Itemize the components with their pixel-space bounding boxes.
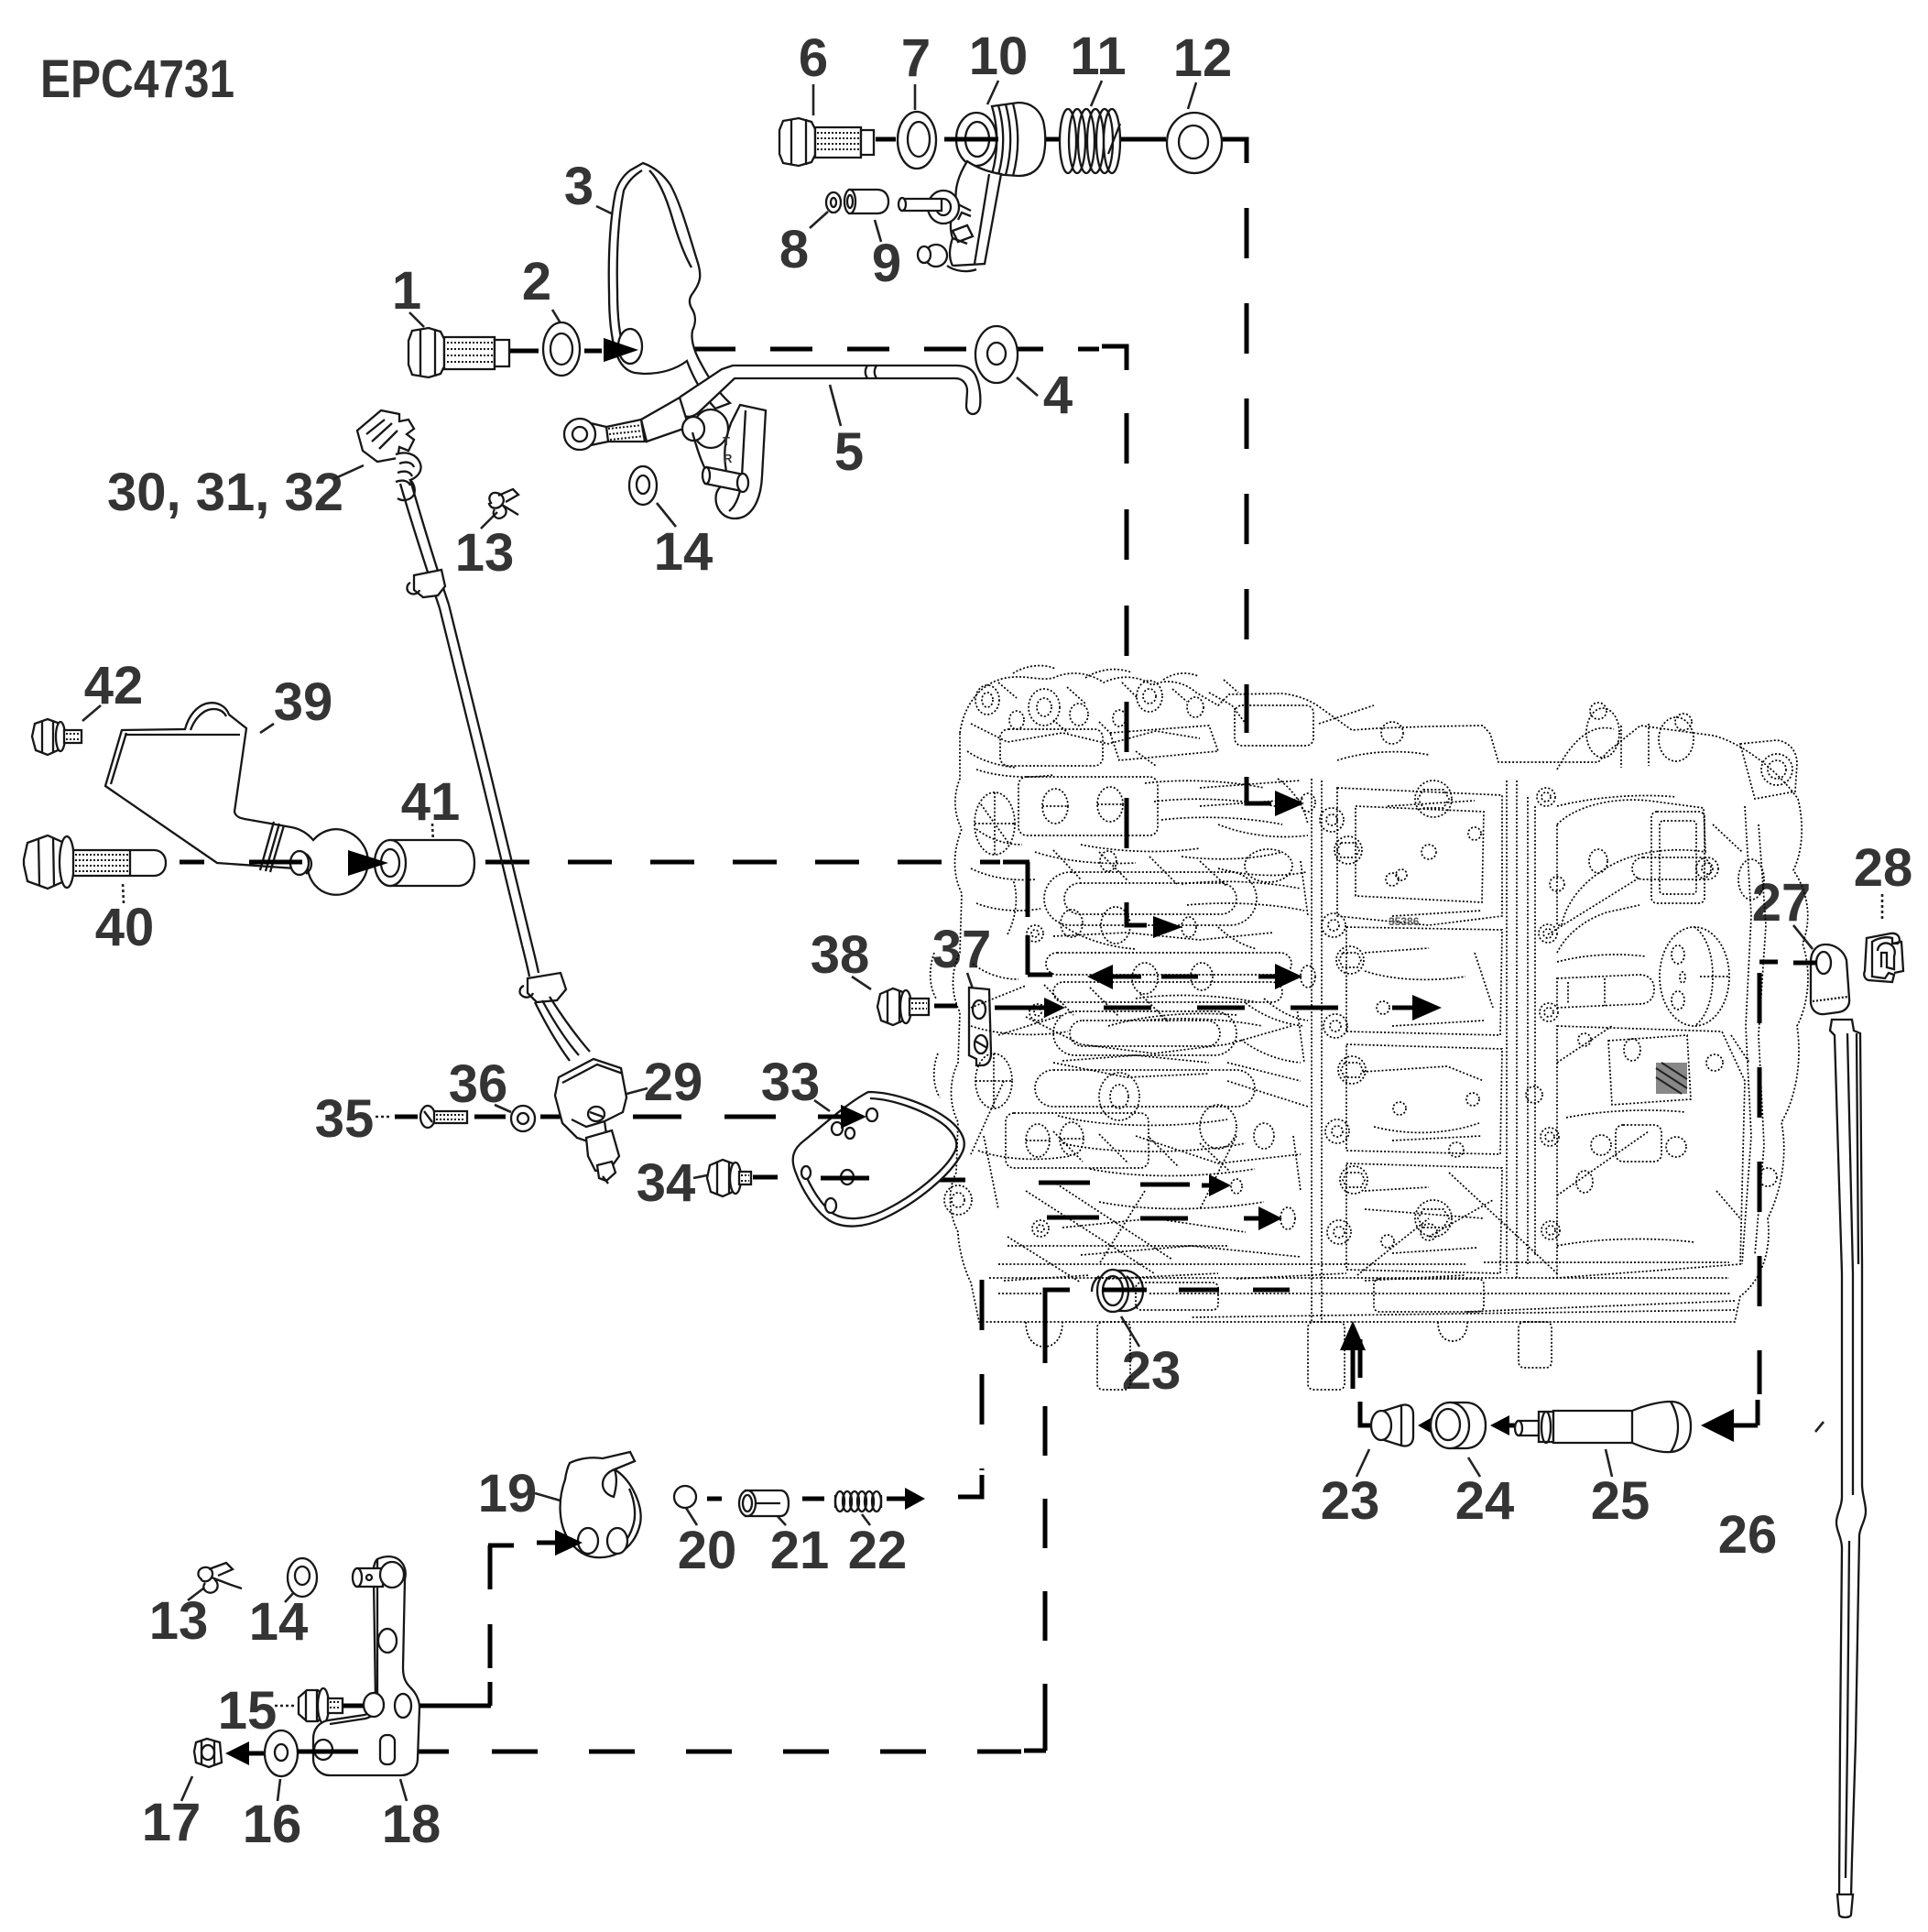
svg-text:40: 40 (95, 898, 155, 957)
svg-text:11: 11 (1070, 27, 1126, 86)
svg-text:12: 12 (1173, 28, 1233, 88)
svg-text:24: 24 (1455, 1471, 1515, 1531)
svg-text:7: 7 (901, 28, 931, 88)
svg-text:6: 6 (799, 28, 828, 88)
svg-text:33: 33 (761, 1053, 821, 1112)
svg-text:15: 15 (218, 1681, 278, 1741)
svg-text:20: 20 (678, 1521, 737, 1580)
svg-text:R: R (724, 452, 733, 465)
svg-text:14: 14 (654, 522, 713, 582)
svg-text:41: 41 (401, 772, 461, 832)
svg-text:29: 29 (644, 1053, 703, 1112)
svg-text:18: 18 (382, 1795, 441, 1854)
svg-text:28: 28 (1854, 838, 1913, 898)
svg-text:21: 21 (770, 1521, 830, 1580)
svg-text:42: 42 (84, 656, 144, 715)
svg-text:10: 10 (969, 27, 1029, 86)
svg-text:16: 16 (243, 1795, 302, 1854)
svg-text:3: 3 (564, 157, 594, 216)
svg-text:14: 14 (249, 1592, 309, 1652)
svg-text:EPC4731: EPC4731 (40, 49, 234, 109)
svg-text:22: 22 (848, 1521, 908, 1580)
svg-text:25: 25 (1591, 1471, 1650, 1531)
svg-text:2: 2 (522, 252, 551, 311)
svg-text:35: 35 (315, 1089, 375, 1149)
svg-text:1: 1 (392, 261, 421, 321)
svg-text:30, 31, 32: 30, 31, 32 (107, 463, 343, 522)
svg-text:36: 36 (449, 1054, 508, 1114)
svg-text:39: 39 (274, 672, 333, 732)
svg-text:8: 8 (779, 220, 809, 279)
svg-text:23: 23 (1321, 1471, 1380, 1531)
svg-text:34: 34 (637, 1153, 696, 1213)
svg-text:T: T (723, 434, 730, 448)
svg-text:35386: 35386 (1389, 915, 1420, 928)
svg-text:38: 38 (811, 925, 870, 985)
svg-text:17: 17 (142, 1793, 202, 1852)
svg-text:13: 13 (455, 523, 515, 583)
svg-text:13: 13 (149, 1591, 209, 1651)
svg-text:5: 5 (834, 422, 864, 482)
svg-text:19: 19 (478, 1464, 538, 1523)
svg-text:27: 27 (1752, 873, 1812, 933)
svg-text:4: 4 (1043, 366, 1073, 425)
svg-text:9: 9 (872, 234, 901, 293)
svg-text:26: 26 (1718, 1505, 1778, 1565)
